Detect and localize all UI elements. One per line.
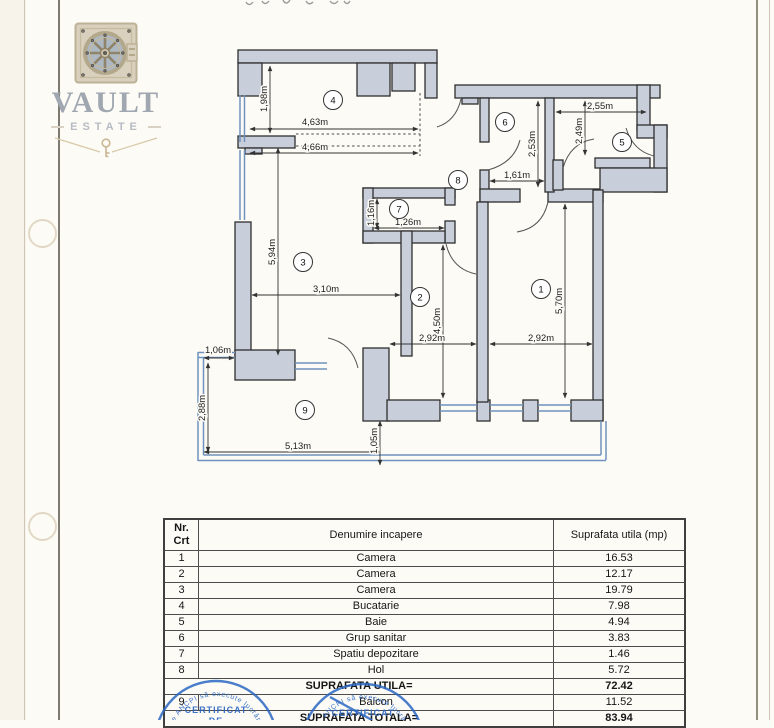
table-cell: 16.53 [554, 551, 686, 567]
header-denumire: Denumire incapere [199, 519, 554, 551]
header-nr: Nr. Crt [164, 519, 199, 551]
dimension-label: 1,05m [368, 428, 379, 454]
table-cell: 3 [164, 583, 199, 599]
room-number: 8 [455, 175, 460, 186]
dimension-label: 5,94m [266, 239, 277, 265]
header-suprafata: Suprafata utila (mp) [554, 519, 686, 551]
table-row: 5Baie4.94 [164, 615, 685, 631]
table-cell: 3.83 [554, 631, 686, 647]
table-cell: 5 [164, 615, 199, 631]
room-number: 2 [417, 292, 422, 303]
stamp-left-line1: CERTIFICAT [185, 705, 248, 715]
table-cell: Camera [199, 567, 554, 583]
room-number: 1 [538, 284, 543, 295]
hole-punch-bottom [28, 512, 57, 541]
room-number: 5 [619, 137, 624, 148]
table-cell: 19.79 [554, 583, 686, 599]
dimension-label: 1,16m [365, 200, 376, 226]
table-row: 4Bucatarie7.98 [164, 599, 685, 615]
table-cell: 4.94 [554, 615, 686, 631]
room-number: 6 [502, 117, 507, 128]
dimension-label: 5,70m [553, 288, 564, 314]
dimension-label: 4,50m [431, 308, 442, 334]
dimension-label: 5,13m [285, 440, 311, 451]
room-number: 7 [396, 204, 401, 215]
table-cell: 4 [164, 599, 199, 615]
room-number: 3 [300, 257, 305, 268]
table-row: 1Camera16.53 [164, 551, 685, 567]
room-number: 4 [330, 95, 335, 106]
stamp-left-line2: DE [209, 716, 224, 720]
header-nr-line1: Nr. [165, 522, 198, 535]
header-nr-line2: Crt [165, 535, 198, 548]
dimension-label: 1,06m [205, 344, 231, 355]
certification-stamps: zat de ANCPI să execute lucrări de cadas… [0, 650, 774, 720]
table-row: 3Camera19.79 [164, 583, 685, 599]
stamp-right-line1: CERTIFICAT [332, 708, 395, 718]
table-header-row: Nr. Crt Denumire incapere Suprafata util… [164, 519, 685, 551]
dimension-label: 1,98m [258, 86, 269, 112]
table-row: 6Grup sanitar3.83 [164, 631, 685, 647]
table-cell: Baie [199, 615, 554, 631]
dimension-label: 2,53m [526, 131, 537, 157]
dimension-label: 2,92m [528, 332, 554, 343]
table-cell: 2 [164, 567, 199, 583]
dimension-label: 4,63m [302, 116, 328, 127]
table-cell: Grup sanitar [199, 631, 554, 647]
table-cell: Bucatarie [199, 599, 554, 615]
dimension-label: 2,49m [573, 118, 584, 144]
table-cell: 6 [164, 631, 199, 647]
dimension-label: 1,61m [504, 169, 530, 180]
table-row: 2Camera12.17 [164, 567, 685, 583]
table-cell: 1 [164, 551, 199, 567]
table-cell: 12.17 [554, 567, 686, 583]
dimension-label: 2,92m [419, 332, 445, 343]
dimension-label: 2,55m [587, 100, 613, 111]
room-number: 9 [302, 405, 307, 416]
table-cell: Camera [199, 551, 554, 567]
table-cell: Camera [199, 583, 554, 599]
dimension-label: 3,10m [313, 283, 339, 294]
table-cell: 7.98 [554, 599, 686, 615]
dimension-label: 4,66m [302, 141, 328, 152]
dimension-label: 2,88m [196, 395, 207, 421]
cropped-text-fragments [246, 0, 350, 5]
stamp-left: zat de ANCPI să execute lucrări de cadas… [0, 650, 277, 720]
floor-plan: 1,98m4,63m4,66m2,55m2,49m2,53m1,61m1,16m… [0, 0, 774, 500]
scanned-floorplan-page: { "logo": { "title": "VAULT", "subtitle"… [0, 0, 774, 720]
